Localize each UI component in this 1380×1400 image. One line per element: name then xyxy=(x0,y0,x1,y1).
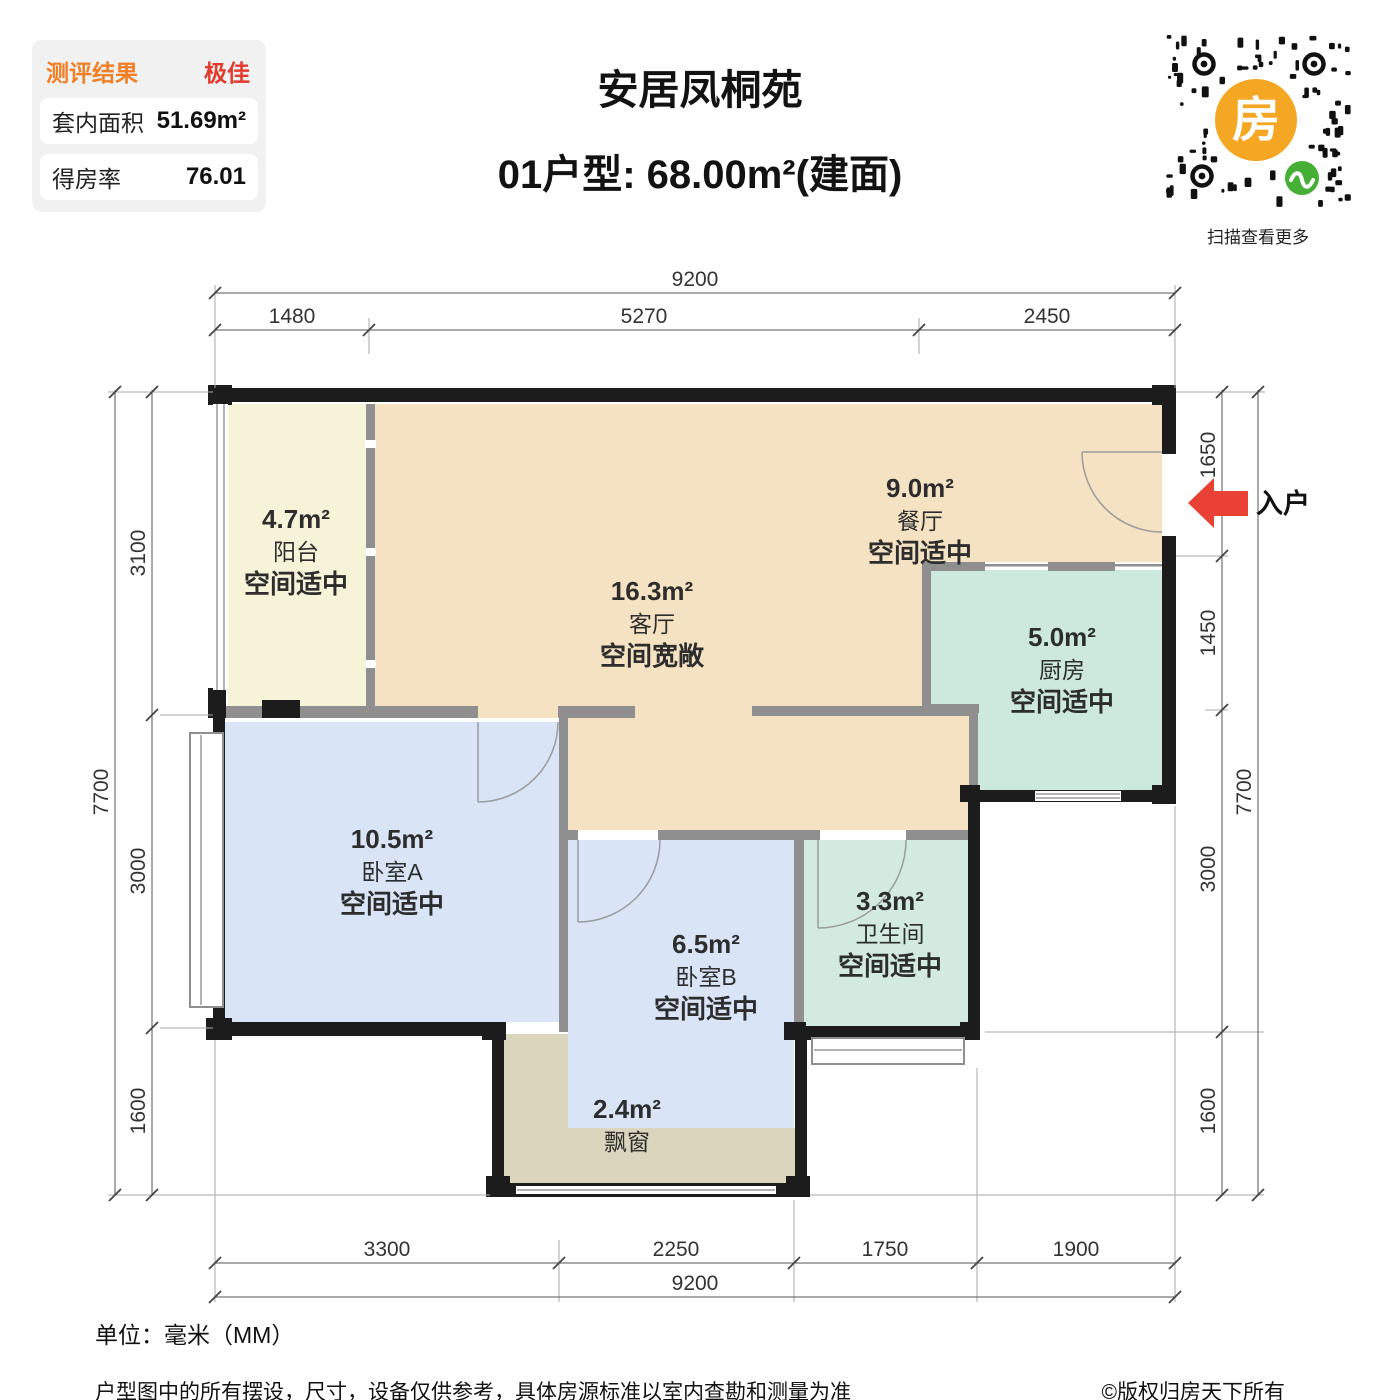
svg-text:空间适中: 空间适中 xyxy=(244,569,348,599)
unit-note: 单位：毫米（MM） xyxy=(95,1316,294,1350)
dim-bottom-seg0: 3300 xyxy=(364,1238,411,1261)
svg-text:空间适中: 空间适中 xyxy=(340,889,444,919)
dim-right-seg3: 1600 xyxy=(1197,1088,1220,1135)
dim-bottom-seg3: 1900 xyxy=(1053,1238,1100,1261)
svg-text:5.0m²: 5.0m² xyxy=(1028,622,1096,652)
svg-text:3.3m²: 3.3m² xyxy=(856,886,924,916)
svg-text:10.5m²: 10.5m² xyxy=(351,824,434,854)
svg-text:阳台: 阳台 xyxy=(273,539,319,565)
dim-top-seg2: 2450 xyxy=(1024,305,1071,328)
dim-bottom-seg1: 2250 xyxy=(653,1238,700,1261)
svg-text:卧室B: 卧室B xyxy=(675,964,736,990)
dim-right-seg1: 1450 xyxy=(1197,610,1220,657)
dim-bottom-seg2: 1750 xyxy=(862,1238,909,1261)
svg-text:飘窗: 飘窗 xyxy=(604,1129,650,1155)
svg-text:卫生间: 卫生间 xyxy=(856,921,925,947)
dim-right-seg2: 3000 xyxy=(1197,846,1220,893)
disclaimer: 户型图中的所有摆设，尺寸，设备仅供参考，具体房源标准以室内查勘和测量为准 xyxy=(95,1376,851,1400)
svg-text:2.4m²: 2.4m² xyxy=(593,1094,661,1124)
dim-top-total: 9200 xyxy=(672,268,719,291)
dim-top-seg1: 5270 xyxy=(621,305,668,328)
dim-bottom-total: 9200 xyxy=(672,1272,719,1295)
svg-text:空间适中: 空间适中 xyxy=(1010,687,1114,717)
bedroom-a-bay-window xyxy=(190,733,223,1007)
entry-label: 入户 xyxy=(1256,488,1310,519)
dim-right-total: 7700 xyxy=(1233,769,1256,816)
svg-text:客厅: 客厅 xyxy=(629,611,675,637)
dim-left-seg2: 1600 xyxy=(127,1088,150,1135)
svg-text:16.3m²: 16.3m² xyxy=(611,576,694,606)
svg-text:厨房: 厨房 xyxy=(1039,657,1085,683)
svg-text:6.5m²: 6.5m² xyxy=(672,929,740,959)
floor-plan: 4.7m² 阳台 空间适中 16.3m² 客厅 空间宽敞 9.0m² 餐厅 空间… xyxy=(0,0,1380,1400)
dim-right-seg0: 1650 xyxy=(1197,432,1220,479)
floorplan-page: 测评结果 极佳 套内面积 51.69m² 得房率 76.01 安居凤桐苑 01户… xyxy=(0,0,1380,1400)
dim-left-seg1: 3000 xyxy=(127,848,150,895)
svg-text:9.0m²: 9.0m² xyxy=(886,473,954,503)
entry-marker: 入户 xyxy=(1188,478,1310,528)
entry-arrow-icon xyxy=(1188,478,1248,528)
dim-top-seg0: 1480 xyxy=(269,305,316,328)
svg-text:4.7m²: 4.7m² xyxy=(262,504,330,534)
svg-text:餐厅: 餐厅 xyxy=(897,508,943,534)
bathroom-window-box xyxy=(812,1038,964,1064)
dim-left-total: 7700 xyxy=(90,769,113,816)
dim-left-seg0: 3100 xyxy=(127,530,150,577)
svg-text:卧室A: 卧室A xyxy=(361,859,423,885)
copyright: ©版权归房天下所有 xyxy=(1102,1376,1285,1400)
svg-text:空间宽敞: 空间宽敞 xyxy=(600,641,705,671)
svg-text:空间适中: 空间适中 xyxy=(838,951,942,981)
svg-text:空间适中: 空间适中 xyxy=(654,994,758,1024)
svg-text:空间适中: 空间适中 xyxy=(868,538,972,568)
